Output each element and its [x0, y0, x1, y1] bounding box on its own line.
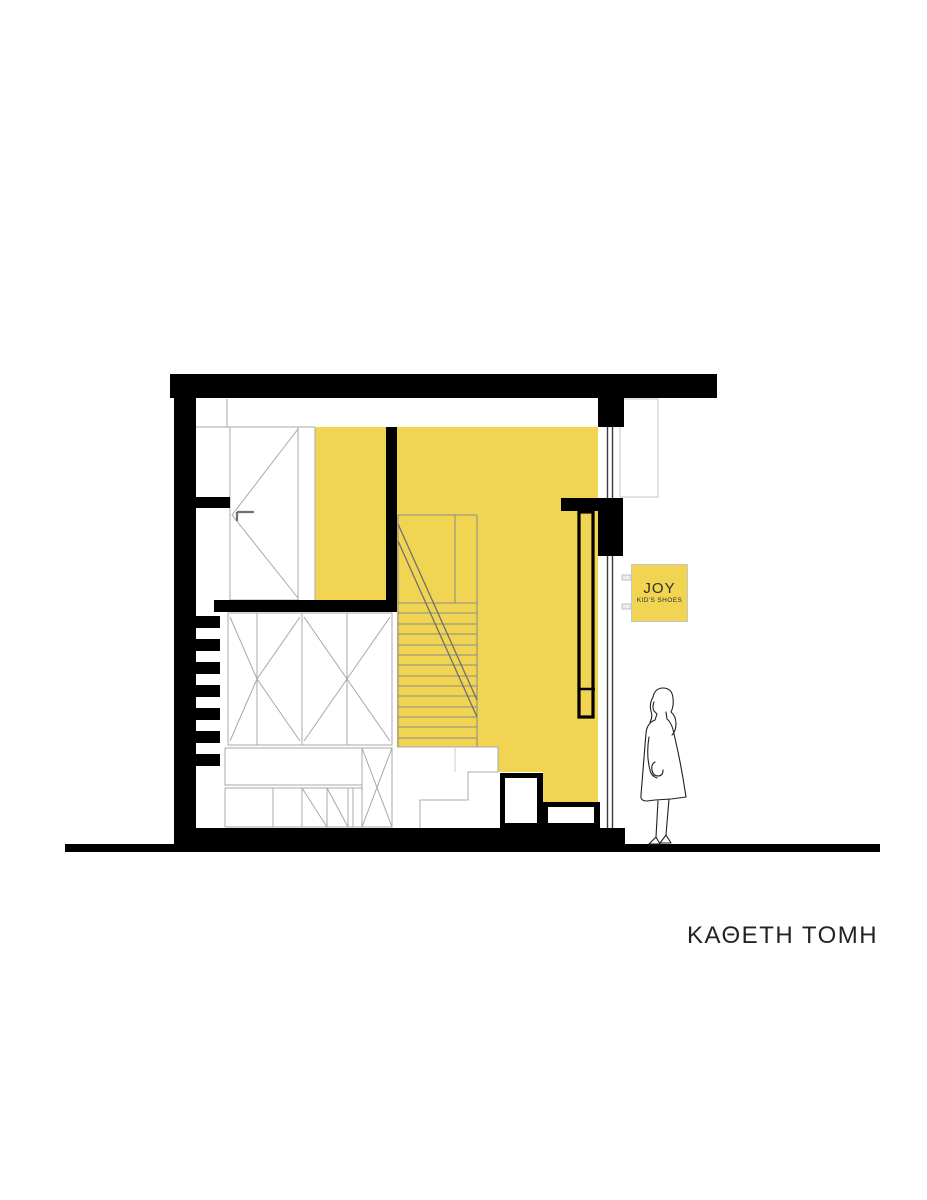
storefront-beam	[598, 398, 624, 427]
stairwell-yellow-fill	[315, 427, 598, 802]
counter-and-cabinets	[225, 748, 392, 827]
entrance-transom-outline	[620, 399, 658, 497]
storefront-glazing	[608, 398, 613, 828]
entry-steps	[397, 747, 498, 828]
left-wall	[174, 374, 196, 845]
section-drawing	[0, 0, 927, 1200]
architectural-section-page: JOY KID'S SHOES ΚΑΘΕΤΗ ΤΟΜΗ	[0, 0, 927, 1200]
woman-shoes	[649, 835, 671, 844]
shop-sign: JOY KID'S SHOES	[631, 564, 688, 622]
door-handle	[237, 512, 254, 521]
wall-shelf-teeth	[196, 616, 220, 766]
upper-floor-slab	[214, 600, 397, 612]
roof-slab	[170, 374, 717, 398]
interior-wall	[386, 427, 397, 603]
wardrobe-elevation	[225, 613, 392, 748]
entrance-canopy	[561, 498, 623, 511]
sign-brackets	[622, 575, 631, 609]
woman-legs	[656, 799, 669, 837]
shop-sign-name: JOY	[643, 581, 675, 596]
woman-figure	[641, 688, 686, 844]
shop-sign-subtitle: KID'S SHOES	[637, 598, 682, 605]
canopy-column	[598, 511, 623, 556]
ground-line	[65, 844, 880, 852]
drawing-title: ΚΑΘΕΤΗ ΤΟΜΗ	[687, 922, 878, 950]
floor-slab	[174, 828, 625, 845]
woman-face	[650, 697, 653, 722]
wall-stub	[196, 497, 230, 508]
